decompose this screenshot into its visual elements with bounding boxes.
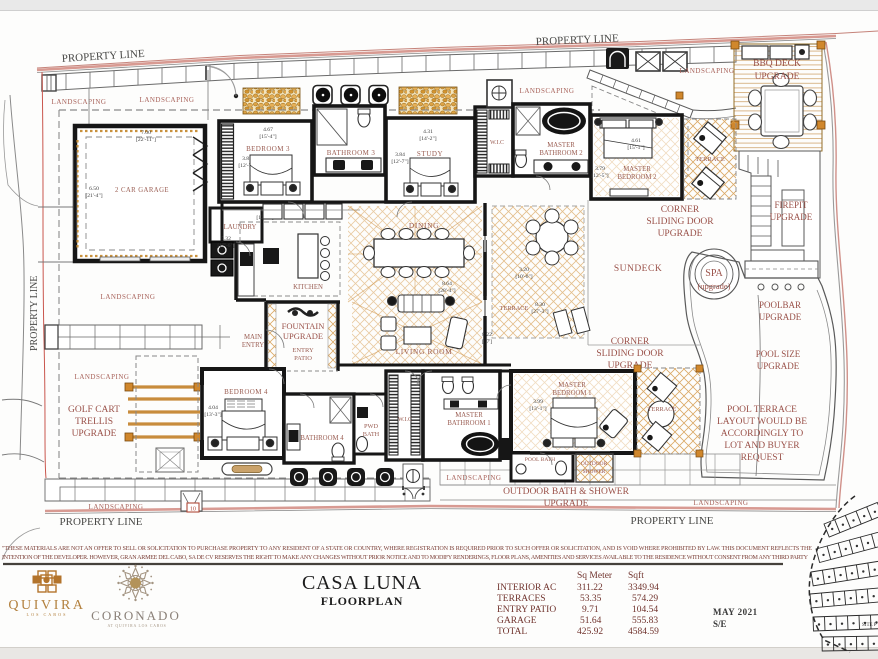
svg-text:S/E: S/E [713, 619, 727, 629]
svg-text:9.71: 9.71 [582, 605, 599, 615]
svg-text:CORONADO: CORONADO [91, 608, 181, 623]
svg-text:GOLF CART: GOLF CART [68, 405, 120, 415]
svg-text:UPGRADE: UPGRADE [658, 229, 703, 239]
svg-text:[27'-3"]: [27'-3"] [531, 309, 548, 315]
svg-text:LANDSCAPING: LANDSCAPING [680, 67, 735, 75]
svg-text:10: 10 [190, 507, 196, 513]
svg-text:3.79: 3.79 [595, 166, 605, 172]
svg-text:574.29: 574.29 [632, 594, 658, 604]
svg-text:3349.94: 3349.94 [628, 583, 659, 593]
svg-text:[14'-2"]: [14'-2"] [419, 136, 436, 142]
svg-text:MAY 2021: MAY 2021 [713, 607, 758, 617]
svg-text:LOS CABOS: LOS CABOS [27, 612, 68, 617]
svg-text:TRELLIS: TRELLIS [75, 417, 113, 427]
svg-text:3.99: 3.99 [533, 399, 543, 405]
svg-text:INTERIOR AC: INTERIOR AC [497, 583, 556, 593]
svg-text:[12'-5"]: [12'-5"] [591, 173, 608, 179]
svg-text:[13'-3"]: [13'-3"] [204, 412, 221, 418]
svg-text:LANDSCAPING: LANDSCAPING [447, 474, 502, 482]
svg-text:SHOWER: SHOWER [583, 469, 606, 475]
svg-text:TERRACE: TERRACE [500, 305, 529, 312]
svg-text:BBQ DECK: BBQ DECK [753, 59, 801, 69]
svg-text:[15'-1"]: [15'-1"] [627, 145, 644, 151]
svg-text:BATH: BATH [363, 431, 380, 438]
svg-text:LIVING ROOM: LIVING ROOM [396, 347, 453, 356]
svg-text:SITE P: SITE P [862, 623, 877, 628]
svg-text:8.64: 8.64 [442, 281, 452, 287]
svg-text:Sqft: Sqft [628, 570, 644, 581]
svg-text:TERRACE: TERRACE [648, 406, 677, 413]
svg-text:POOLBAR: POOLBAR [759, 300, 801, 310]
svg-text:MASTER: MASTER [623, 166, 651, 173]
svg-text:[28'-4"]: [28'-4"] [438, 288, 455, 294]
svg-text:FIREPIT: FIREPIT [774, 200, 808, 210]
svg-text:PWD: PWD [364, 423, 378, 430]
svg-text:BATHROOM 2: BATHROOM 2 [539, 150, 583, 157]
svg-text:BATHROOM 3: BATHROOM 3 [327, 149, 376, 157]
svg-text:INTENTION OF THE DEVELOPER. HO: INTENTION OF THE DEVELOPER. HOWEVER, GRA… [2, 555, 809, 561]
svg-text:BATHROOM 4: BATHROOM 4 [300, 435, 344, 442]
svg-text:W.I.C: W.I.C [490, 140, 504, 146]
svg-text:[17'-6"]: [17'-6"] [217, 243, 234, 249]
svg-text:REQUEST: REQUEST [741, 453, 784, 463]
svg-text:PATIO: PATIO [294, 355, 312, 362]
svg-text:BEDROOM 3: BEDROOM 3 [246, 145, 290, 153]
svg-text:[13'-1"]: [13'-1"] [529, 406, 546, 412]
svg-text:UPGRADE: UPGRADE [757, 361, 800, 371]
svg-text:BATHROOM 1: BATHROOM 1 [447, 420, 490, 427]
svg-text:104.54: 104.54 [632, 605, 658, 615]
svg-text:51.64: 51.64 [580, 616, 602, 626]
svg-text:[22'-11"]: [22'-11"] [136, 137, 156, 143]
svg-text:BEDROOM 2: BEDROOM 2 [617, 174, 657, 181]
svg-text:FLOORPLAN: FLOORPLAN [321, 594, 404, 608]
svg-text:[12'-7"]: [12'-7"] [391, 159, 408, 165]
svg-text:MASTER: MASTER [558, 382, 586, 389]
svg-text:BEDROOM 1: BEDROOM 1 [552, 390, 591, 397]
svg-text:CORNER: CORNER [661, 205, 700, 215]
svg-text:MASTER: MASTER [547, 142, 575, 149]
svg-text:MASTER: MASTER [455, 412, 483, 419]
svg-text:ENTRY PATIO: ENTRY PATIO [497, 605, 556, 615]
svg-text:POOL SIZE: POOL SIZE [756, 349, 801, 359]
svg-text:TOTAL: TOTAL [497, 627, 527, 637]
svg-text:STUDY: STUDY [417, 150, 443, 158]
svg-text:3.20: 3.20 [519, 267, 529, 273]
svg-text:TERRACES: TERRACES [497, 594, 546, 604]
svg-text:SUNDECK: SUNDECK [614, 264, 662, 274]
svg-text:BEDROOM 4: BEDROOM 4 [224, 388, 268, 396]
svg-text:7.00: 7.00 [141, 130, 151, 136]
svg-text:LANDSCAPING: LANDSCAPING [101, 293, 156, 301]
svg-text:4.67: 4.67 [263, 127, 273, 133]
svg-text:OUTDOOR: OUTDOOR [581, 461, 608, 467]
svg-text:ACCORDINGLY TO: ACCORDINGLY TO [721, 429, 804, 439]
svg-text:4.04: 4.04 [208, 405, 218, 411]
svg-text:8.30: 8.30 [535, 302, 545, 308]
svg-text:AT QUIVIRA LOS CABOS: AT QUIVIRA LOS CABOS [107, 624, 166, 628]
svg-text:QUIVIRA: QUIVIRA [8, 598, 85, 613]
svg-text:425.92: 425.92 [577, 627, 603, 637]
svg-text:SLIDING DOOR: SLIDING DOOR [646, 217, 714, 227]
svg-text:SLIDING DOOR: SLIDING DOOR [596, 349, 664, 359]
svg-text:LOT AND BUYER: LOT AND BUYER [724, 441, 800, 451]
svg-text:LANDSCAPING: LANDSCAPING [75, 373, 130, 381]
svg-text:"THESE MATERIALS ARE NOT AN OF: "THESE MATERIALS ARE NOT AN OFFER TO SEL… [2, 546, 812, 552]
svg-text:UPGRADE: UPGRADE [544, 499, 589, 509]
svg-text:LANDSCAPING: LANDSCAPING [140, 96, 195, 104]
svg-text:3.84: 3.84 [395, 152, 405, 158]
svg-text:[15'-4"]: [15'-4"] [259, 134, 276, 140]
svg-text:53.35: 53.35 [580, 594, 602, 604]
svg-text:UPGRADE: UPGRADE [72, 429, 117, 439]
svg-text:311.22: 311.22 [577, 583, 603, 593]
svg-text:CORNER: CORNER [611, 337, 650, 347]
svg-text:UPGRADE: UPGRADE [283, 331, 323, 341]
svg-text:KITCHEN: KITCHEN [293, 284, 323, 291]
svg-text:PROPERTY LINE: PROPERTY LINE [29, 276, 40, 351]
svg-text:POOL TERRACE: POOL TERRACE [727, 405, 797, 415]
svg-text:4.31: 4.31 [423, 129, 433, 135]
svg-text:OUTDOOR BATH & SHOWER: OUTDOOR BATH & SHOWER [503, 487, 630, 497]
svg-text:PROPERTY LINE: PROPERTY LINE [60, 516, 143, 528]
svg-text:ENTRY: ENTRY [292, 347, 314, 354]
svg-text:PROPERTY LINE: PROPERTY LINE [631, 515, 714, 527]
svg-text:TERRACE: TERRACE [695, 156, 725, 163]
svg-text:5.32: 5.32 [221, 236, 231, 242]
svg-text:W.I.C: W.I.C [398, 417, 412, 423]
svg-text:UPGRADE: UPGRADE [755, 72, 800, 82]
svg-text:GARAGE: GARAGE [497, 616, 537, 626]
svg-text:555.83: 555.83 [632, 616, 658, 626]
svg-text:[10'-6"]: [10'-6"] [515, 274, 532, 280]
svg-text:LANDSCAPING: LANDSCAPING [52, 98, 107, 106]
svg-text:UPGRADE: UPGRADE [759, 312, 802, 322]
svg-text:CASA LUNA: CASA LUNA [302, 572, 422, 594]
svg-text:(upgrade): (upgrade) [697, 281, 730, 291]
svg-text:LANDSCAPING: LANDSCAPING [520, 87, 575, 95]
svg-text:ENTRY: ENTRY [242, 342, 264, 349]
svg-text:LAYOUT WOULD BE: LAYOUT WOULD BE [717, 417, 807, 427]
svg-text:SPA: SPA [705, 268, 723, 279]
svg-text:4584.59: 4584.59 [628, 627, 659, 637]
svg-text:UPGRADE: UPGRADE [770, 212, 813, 222]
svg-text:6.50: 6.50 [89, 186, 99, 192]
svg-text:[21'-4"]: [21'-4"] [85, 193, 102, 199]
svg-text:MAIN: MAIN [244, 334, 262, 341]
svg-text:2 CAR GARAGE: 2 CAR GARAGE [115, 187, 169, 194]
svg-text:Sq Meter: Sq Meter [577, 571, 613, 581]
svg-text:4.61: 4.61 [631, 138, 641, 144]
svg-text:FOUNTAIN: FOUNTAIN [282, 321, 325, 331]
